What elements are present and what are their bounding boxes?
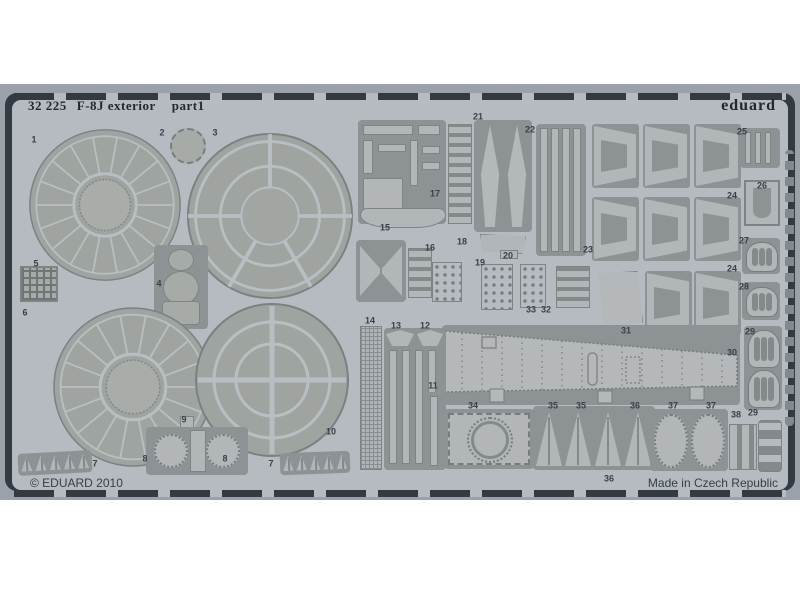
part-number-label: 6 (22, 309, 27, 318)
part-number-label: 23 (583, 246, 593, 255)
part-16-chevron-panel (356, 240, 406, 302)
part-number-label: 16 (425, 244, 435, 253)
part-8-mount-plate (146, 427, 248, 475)
part-number-label: 5 (33, 260, 38, 269)
part-number-label: 38 (731, 411, 741, 420)
part-number-label: 32 (541, 306, 551, 315)
part-3-segmented-disc (186, 132, 354, 300)
part-29-slotted-plate (758, 420, 782, 472)
part-number-label: 36 (630, 402, 640, 411)
part-number-label: 35 (548, 402, 558, 411)
part-number-label: 3 (212, 129, 217, 138)
part-number-label: 12 (420, 322, 430, 331)
part-number-label: 28 (739, 283, 749, 292)
part-number-label: 17 (430, 190, 440, 199)
catalog-number: 32 225 (28, 98, 67, 113)
part-7-triangle-strip (17, 450, 92, 476)
part-number-label: 2 (159, 129, 164, 138)
part-number-label: 18 (457, 238, 467, 247)
part-7-triangle-strip (280, 451, 351, 475)
sheet-title: 32 225F-8J exteriorpart1 (28, 98, 205, 114)
part-number-label: 9 (181, 416, 186, 425)
part-29-vent-plates (744, 326, 782, 410)
part-30-wing-skin (442, 325, 740, 405)
part-designation: part1 (172, 98, 205, 113)
part-14-mesh-strip (360, 326, 382, 470)
part-32-small-plate (556, 266, 590, 308)
part-24-bracket (592, 124, 639, 188)
set-name: F-8J exterior (77, 98, 156, 113)
part-number-label: 24 (727, 265, 737, 274)
part-34-recess (444, 409, 534, 469)
part-38-striped-plate (729, 424, 757, 470)
part-15-curved-strip (360, 208, 446, 228)
part-number-label: 27 (739, 237, 749, 246)
part-number-label: 8 (222, 455, 227, 464)
part-number-label: 7 (268, 460, 273, 469)
brand-logo-text: eduard (721, 97, 776, 115)
part-number-label: 37 (668, 402, 678, 411)
part-5-grid-plate (20, 266, 58, 302)
made-in-text: Made in Czech Republic (648, 476, 778, 490)
part-number-label: 29 (745, 328, 755, 337)
part-33-small-plate (520, 264, 546, 308)
part-19-small-plate (481, 264, 513, 310)
screenshot-root: 32 225F-8J exteriorpart1 eduard © EDUARD… (0, 0, 800, 600)
part-number-label: 37 (706, 402, 716, 411)
part-number-label: 25 (737, 128, 747, 137)
part-number-label: 4 (156, 280, 161, 289)
sheet-bottom-tabs (14, 490, 786, 497)
part-number-label: 13 (391, 322, 401, 331)
copyright-text: © EDUARD 2010 (30, 476, 123, 490)
fret-edge-holes (785, 150, 794, 426)
part-number-label: 14 (365, 317, 375, 326)
part-number-label: 11 (428, 382, 438, 391)
part-16-small-plate (432, 262, 462, 302)
part-number-label: 8 (142, 455, 147, 464)
part-number-label: 22 (525, 126, 535, 135)
part-number-label: 26 (757, 182, 767, 191)
part-number-label: 7 (92, 460, 97, 469)
part-24-bracket (643, 124, 690, 188)
part-number-label: 36 (604, 475, 614, 484)
part-number-label: 24 (727, 192, 737, 201)
part-number-label: 19 (475, 259, 485, 268)
part-24-bracket (694, 197, 741, 261)
part-21-blade-panel (474, 120, 532, 232)
part-number-label: 31 (621, 327, 631, 336)
part-24-bracket (643, 197, 690, 261)
part-18-ladder-strip (448, 124, 472, 224)
part-number-label: 29 (748, 409, 758, 418)
part-37-oval-plates (650, 409, 728, 471)
part-number-label: 33 (526, 306, 536, 315)
part-11-rod-strip (424, 392, 444, 470)
part-24-bracket (694, 124, 741, 188)
part-31-trapezoid-panel (597, 271, 643, 327)
part-35-36-truss-triangles (533, 406, 655, 470)
part-number-label: 30 (727, 349, 737, 358)
part-number-label: 34 (468, 402, 478, 411)
part-16-ladder-plate (408, 248, 432, 298)
part-number-label: 15 (380, 224, 390, 233)
part-number-label: 10 (326, 428, 336, 437)
part-24-bracket (592, 197, 639, 261)
part-number-label: 21 (473, 113, 483, 122)
part-number-label: 20 (503, 252, 513, 261)
part-number-label: 35 (576, 402, 586, 411)
part-number-label: 1 (31, 136, 36, 145)
part-22-23-striped-panel (536, 124, 586, 256)
